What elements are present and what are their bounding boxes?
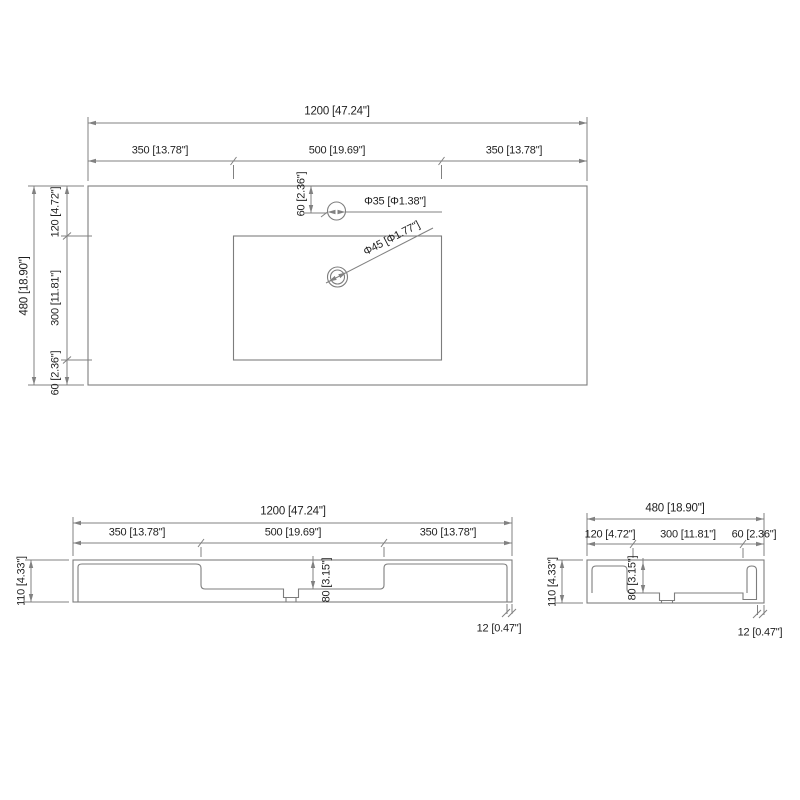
top-width-left-label: 350 [13.78"] xyxy=(132,146,189,157)
front-width-center-label: 500 [19.69"] xyxy=(265,528,322,539)
front-width-total-label: 1200 [47.24"] xyxy=(260,506,325,518)
side-width-left-label: 120 [4.72"] xyxy=(585,530,636,541)
front-dim-height xyxy=(25,560,69,602)
top-dim-width-chain xyxy=(88,157,587,179)
side-width-total-label: 480 [18.90"] xyxy=(645,503,704,515)
front-body-outline xyxy=(73,560,512,602)
side-dim-height xyxy=(556,560,583,603)
front-dim-edge-thickness xyxy=(502,604,516,617)
front-height-label: 110 [4.33"] xyxy=(17,556,28,606)
front-width-right-label: 350 [13.78"] xyxy=(420,528,477,539)
side-width-center-label: 300 [11.81"] xyxy=(660,530,716,541)
top-faucet-offset-label: 60 [2.36"] xyxy=(297,172,308,217)
front-edge-thickness-label: 12 [0.47"] xyxy=(477,624,522,635)
front-basin-depth-label: 80 [3.15"] xyxy=(322,558,333,603)
side-dim-width-chain xyxy=(587,540,764,558)
side-inner-profile xyxy=(592,566,757,601)
front-dim-basin-depth xyxy=(311,556,315,589)
top-width-total-label: 1200 [47.24"] xyxy=(304,106,369,118)
technical-drawing-canvas: 1200 [47.24"] 350 [13.78"] 500 [19.69"] … xyxy=(0,0,800,800)
top-faucet-dia-label: Φ35 [Φ1.38"] xyxy=(364,197,426,208)
top-dim-depth-chain xyxy=(61,186,92,385)
top-width-right-label: 350 [13.78"] xyxy=(486,146,543,157)
side-edge-thickness-label: 12 [0.47"] xyxy=(738,628,783,639)
faucet-hole xyxy=(328,202,346,220)
front-inner-profile xyxy=(78,564,507,602)
side-dim-edge-thickness xyxy=(753,605,767,618)
front-dim-width-chain xyxy=(73,539,512,557)
top-width-center-label: 500 [19.69"] xyxy=(309,146,366,157)
top-dim-faucet-offset xyxy=(305,186,327,213)
side-dim-basin-depth xyxy=(641,558,645,593)
top-depth-basin-label: 300 [11.81"] xyxy=(51,270,62,326)
countertop-outline xyxy=(88,186,587,385)
side-basin-depth-label: 80 [3.15"] xyxy=(628,556,639,601)
top-depth-bottom-label: 60 [2.36"] xyxy=(51,351,62,396)
basin-outline xyxy=(234,236,442,360)
side-height-label: 110 [4.33"] xyxy=(548,557,559,607)
top-depth-total-label: 480 [18.90"] xyxy=(19,256,31,315)
side-width-right-label: 60 [2.36"] xyxy=(732,530,777,541)
front-width-left-label: 350 [13.78"] xyxy=(109,528,166,539)
front-drain-notch-feet xyxy=(286,598,296,603)
top-leader-faucet xyxy=(321,210,442,217)
top-view xyxy=(28,117,587,385)
drawing-linework xyxy=(0,0,800,800)
top-depth-top-label: 120 [4.72"] xyxy=(51,187,62,238)
